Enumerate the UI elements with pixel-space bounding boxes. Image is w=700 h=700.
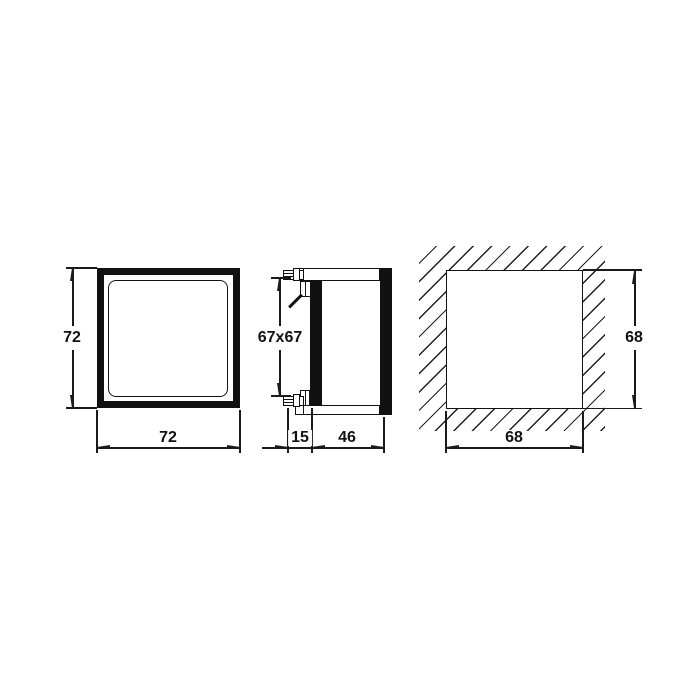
mounting-rail [310, 281, 322, 406]
front-window [108, 280, 228, 397]
dimension-line [446, 447, 583, 448]
arrow-left-icon [446, 445, 459, 449]
extension-line [583, 408, 642, 409]
cutout-opening [446, 270, 583, 409]
dim-label-side-body: 67x67 [255, 330, 306, 346]
screw-ridge [284, 273, 293, 274]
technical-drawing: 72 72 [0, 0, 700, 700]
arrow-right-icon [275, 445, 288, 449]
arrow-up-icon [70, 268, 74, 281]
dim-label-side-front-depth: 15 [288, 430, 312, 446]
arrow-left-icon [312, 445, 325, 449]
arrow-right-icon [371, 445, 384, 449]
arrow-right-icon [227, 445, 240, 449]
case-bottom-endcap [303, 405, 304, 415]
dim-label-front-width: 72 [156, 430, 180, 446]
arrow-down-icon [70, 395, 74, 408]
case-bottom-wall [295, 405, 380, 415]
arrow-up-icon [277, 278, 281, 291]
screw-ridge [284, 399, 293, 400]
screw-ridge [284, 402, 293, 403]
arrow-right-icon [570, 445, 583, 449]
arrow-left-icon [97, 445, 110, 449]
dim-label-cutout-width: 68 [502, 430, 526, 446]
bezel-edge [380, 268, 392, 415]
dim-label-cutout-height: 68 [622, 330, 646, 346]
clamp-lever [288, 294, 303, 309]
clamp-block-line [305, 281, 306, 297]
screw-washer [299, 396, 305, 406]
case-top-wall [295, 268, 380, 281]
dim-label-side-rear-depth: 46 [335, 430, 359, 446]
clamp-block-line [305, 390, 306, 406]
dim-label-front-height: 72 [60, 330, 84, 346]
arrow-up-icon [632, 271, 636, 284]
dimension-line [97, 447, 240, 448]
arrow-down-icon [632, 395, 636, 408]
arrow-down-icon [277, 383, 281, 396]
screw-washer [299, 270, 305, 280]
